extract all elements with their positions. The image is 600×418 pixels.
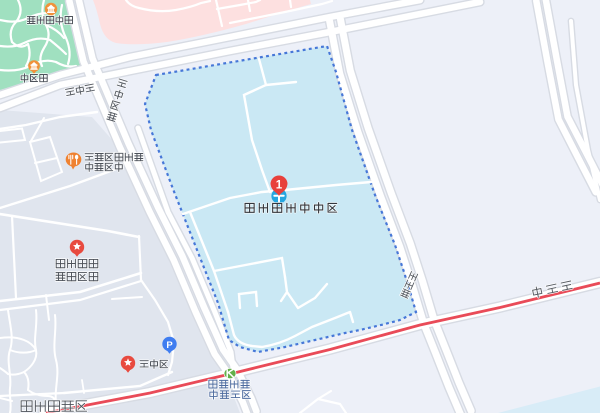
svg-text:P: P: [166, 340, 173, 351]
svg-text:1: 1: [276, 180, 283, 192]
